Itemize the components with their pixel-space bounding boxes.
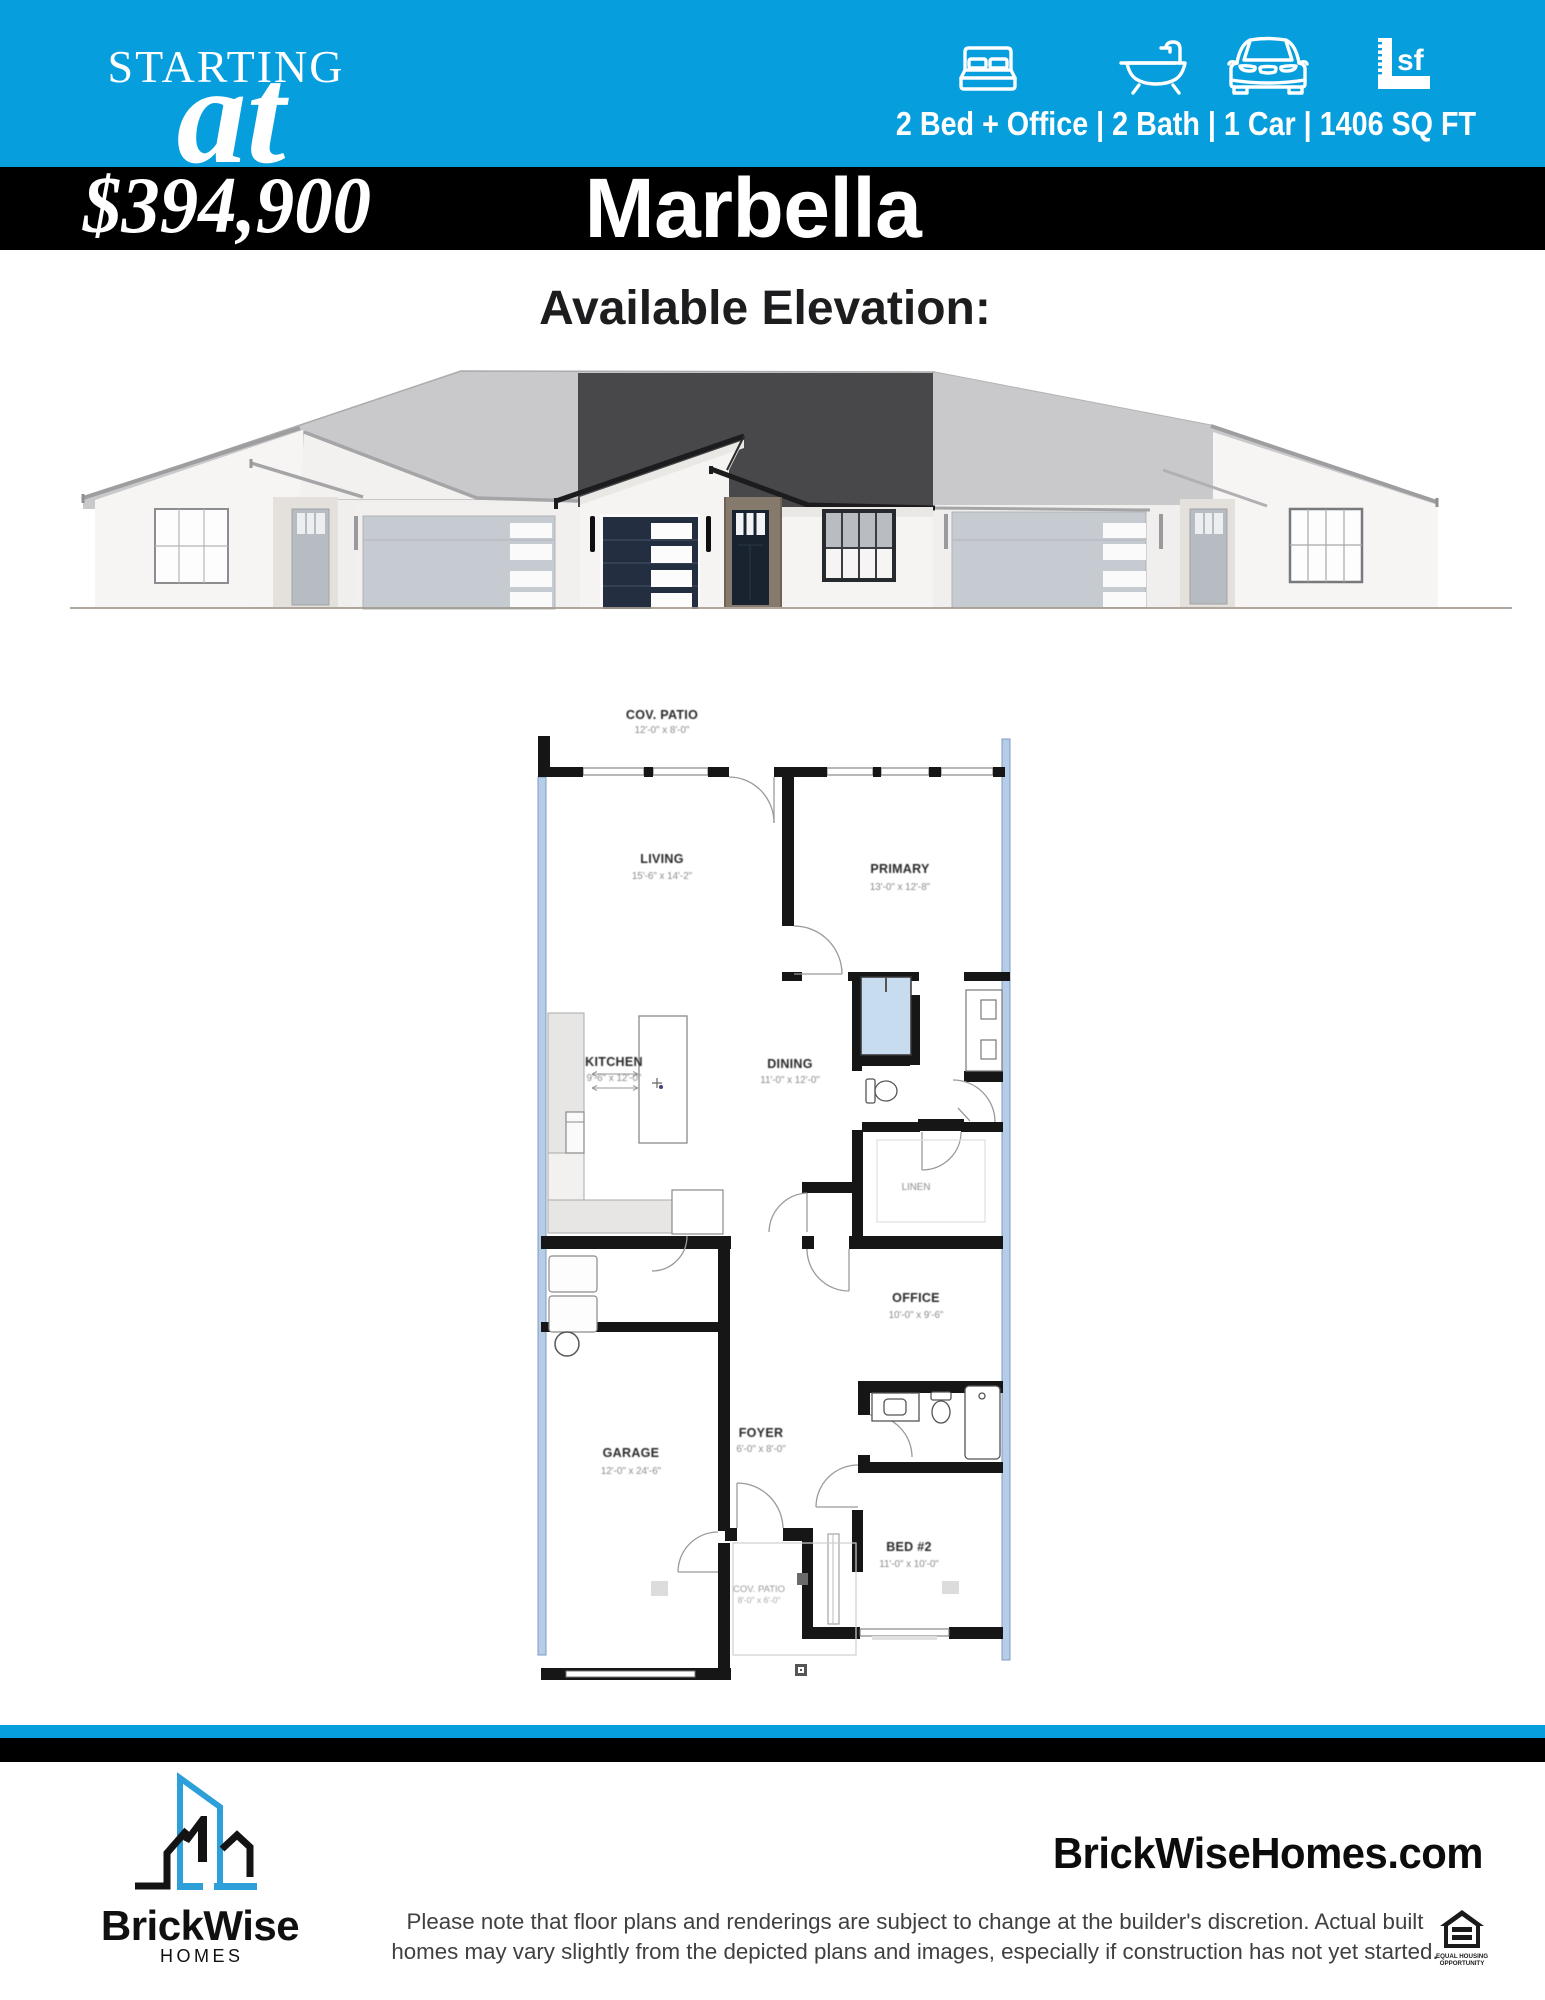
svg-text:12'-0" x 8'-0": 12'-0" x 8'-0" <box>635 725 690 736</box>
svg-text:FOYER: FOYER <box>739 1426 784 1440</box>
svg-text:GARAGE: GARAGE <box>603 1446 660 1460</box>
svg-text:KITCHEN: KITCHEN <box>585 1055 643 1069</box>
svg-text:11'-0" x 12'-0": 11'-0" x 12'-0" <box>760 1075 820 1086</box>
svg-text:6'-0" x 8'-0": 6'-0" x 8'-0" <box>736 1444 786 1455</box>
svg-text:10'-0" x 9'-6": 10'-0" x 9'-6" <box>889 1310 944 1321</box>
svg-text:DINING: DINING <box>767 1057 813 1071</box>
svg-text:LINEN: LINEN <box>902 1182 931 1193</box>
svg-text:11'-0" x 10'-0": 11'-0" x 10'-0" <box>879 1559 939 1570</box>
svg-text:BED #2: BED #2 <box>886 1540 932 1554</box>
svg-text:PRIMARY: PRIMARY <box>870 862 930 876</box>
svg-text:sf: sf <box>1397 44 1425 77</box>
svg-text:13'-0" x 12'-8": 13'-0" x 12'-8" <box>870 882 931 893</box>
svg-text:12'-0" x 24'-6": 12'-0" x 24'-6" <box>601 1466 662 1477</box>
svg-text:8'-0" x 6'-0": 8'-0" x 6'-0" <box>738 1595 781 1605</box>
svg-text:OFFICE: OFFICE <box>892 1291 940 1305</box>
svg-text:COV. PATIO: COV. PATIO <box>626 708 698 722</box>
svg-text:9'-6" x 12'-0": 9'-6" x 12'-0" <box>587 1073 642 1084</box>
svg-text:OPPORTUNITY: OPPORTUNITY <box>1440 1960 1486 1967</box>
svg-text:15'-6" x 14'-2": 15'-6" x 14'-2" <box>632 871 693 882</box>
svg-text:EQUAL HOUSING: EQUAL HOUSING <box>1436 1953 1488 1960</box>
svg-text:COV. PATIO: COV. PATIO <box>733 1584 785 1595</box>
svg-text:LIVING: LIVING <box>640 852 683 866</box>
